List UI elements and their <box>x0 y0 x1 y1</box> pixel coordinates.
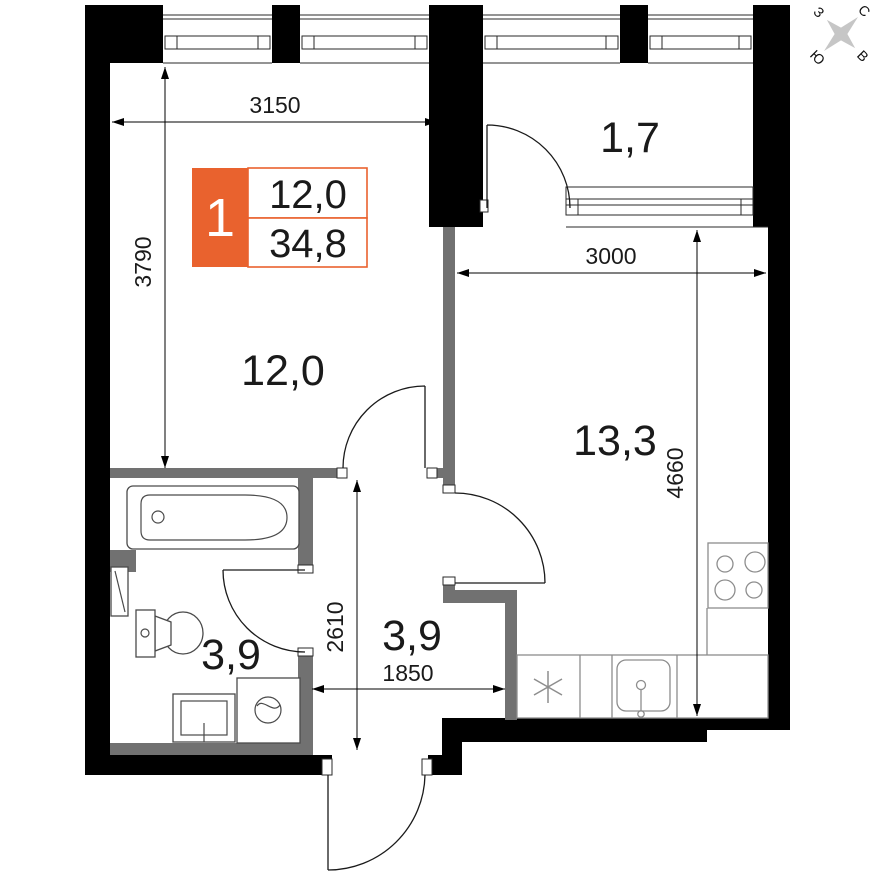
dim-hallway-width: 1850 <box>312 660 505 693</box>
kitchen-counter <box>517 655 768 718</box>
legend-total-area: 34,8 <box>269 222 347 266</box>
dim-label-3150: 3150 <box>249 92 300 118</box>
label-bathroom-area: 3,9 <box>201 631 261 679</box>
dim-living-width: 3150 <box>112 92 437 126</box>
label-living-area: 12,0 <box>241 347 325 395</box>
dim-label-1850: 1850 <box>382 660 433 686</box>
dim-hallway-depth: 2610 <box>322 480 361 750</box>
label-hallway-area: 3,9 <box>382 612 442 660</box>
wash-basin <box>173 694 235 742</box>
toilet <box>136 610 203 657</box>
window-loggia-2 <box>648 5 753 63</box>
washing-machine <box>237 678 300 743</box>
legend-living-area: 12,0 <box>269 173 347 217</box>
kitchen-fixtures <box>517 543 768 718</box>
dim-living-depth: 3790 <box>130 67 169 468</box>
label-loggia-area: 1,7 <box>600 114 660 162</box>
window-living-1 <box>163 5 272 63</box>
compass-east: В <box>854 47 872 65</box>
floor-plan-page: 3150 3790 3000 4660 2610 <box>0 0 880 880</box>
dim-label-3790: 3790 <box>130 236 156 287</box>
door-entrance <box>328 775 425 870</box>
door-kitchen <box>455 493 545 583</box>
door-loggia <box>487 125 570 208</box>
dim-label-2610: 2610 <box>322 601 348 652</box>
dim-kitchen-width: 3000 <box>457 243 766 277</box>
bathroom-fixtures <box>111 486 300 743</box>
legend-flat-number: 1 <box>205 188 235 248</box>
legend-card: 1 12,0 34,8 <box>192 168 367 267</box>
compass-west: З <box>810 3 827 20</box>
dim-label-4660: 4660 <box>662 447 688 498</box>
compass-rose: С В Ю З <box>787 0 880 88</box>
loggia-glazing-band <box>566 187 768 227</box>
dim-label-3000: 3000 <box>585 243 636 269</box>
window-living-2 <box>300 5 429 63</box>
floor-plan-drawing: 3150 3790 3000 4660 2610 <box>0 0 880 880</box>
window-loggia-1 <box>483 5 620 63</box>
label-kitchen-area: 13,3 <box>573 417 657 465</box>
dim-kitchen-depth: 4660 <box>662 230 701 716</box>
wall-panel <box>111 567 128 616</box>
door-living <box>343 386 425 468</box>
bathtub <box>127 486 299 549</box>
